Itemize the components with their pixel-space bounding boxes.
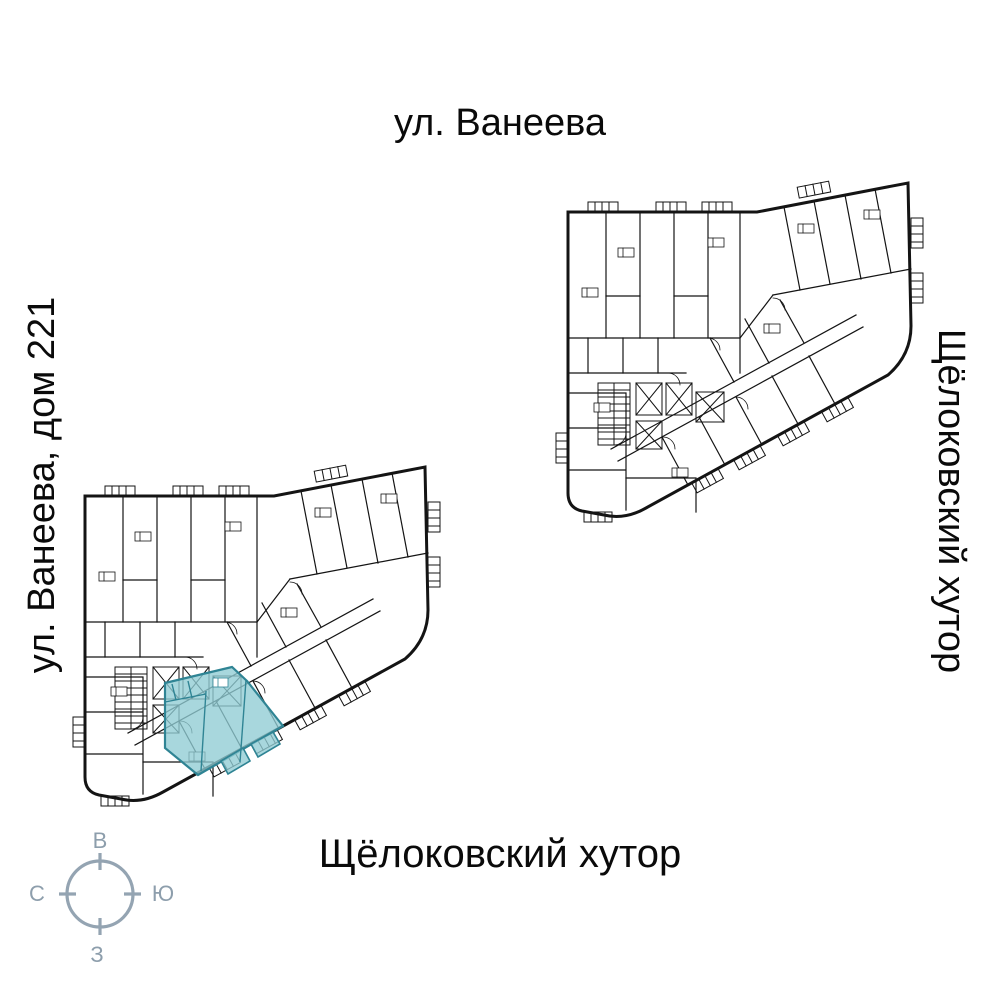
floor-plan-upper — [556, 181, 923, 522]
compass-label-south: Ю — [152, 881, 174, 906]
street-label-right: Щёлоковский хутор — [928, 201, 974, 801]
street-label-left: ул. Ванеева, дом 221 — [19, 185, 65, 785]
street-label-bottom: Щёлоковский хутор — [0, 831, 1000, 877]
site-plan-page: В Ю З С ул. Ванеева ул. Ванеева, дом 221… — [0, 0, 1000, 1000]
street-label-top: ул. Ванеева — [0, 100, 1000, 146]
compass-label-north: С — [29, 881, 45, 906]
selected-apartment-badge — [213, 678, 228, 687]
compass-label-west: З — [90, 942, 103, 967]
